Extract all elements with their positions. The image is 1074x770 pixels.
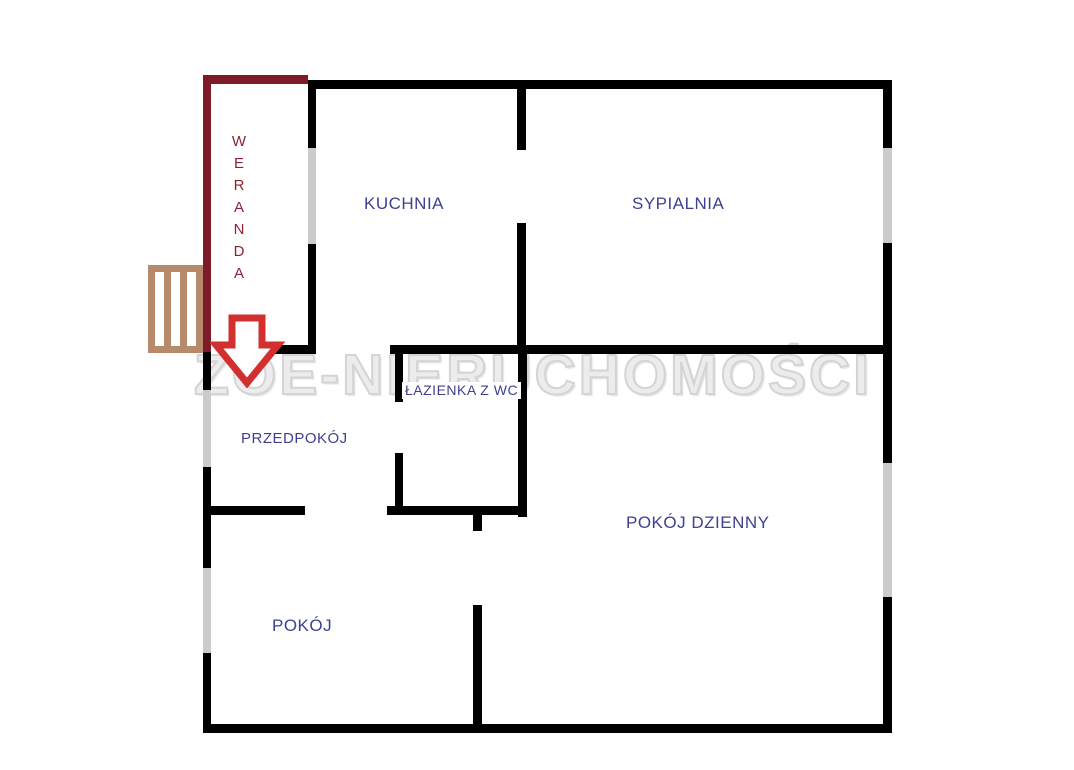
room-label-lazienka: ŁAZIENKA Z WC: [402, 382, 521, 399]
window-segment: [883, 463, 892, 597]
stairs-step: [180, 272, 187, 346]
wall-segment: [518, 345, 527, 517]
wall-segment: [308, 244, 316, 352]
room-label-pokoj-dzienny: POKÓJ DZIENNY: [626, 514, 769, 533]
veranda-wall-segment: [203, 75, 211, 352]
room-label-przedpokoj: PRZEDPOKÓJ: [241, 431, 348, 448]
wall-segment: [308, 80, 316, 148]
room-label-weranda: WERANDA: [230, 133, 247, 287]
veranda-wall-segment: [203, 75, 308, 84]
wall-segment: [395, 453, 403, 513]
stairs-step: [164, 272, 171, 346]
wall-segment: [473, 514, 482, 531]
watermark-text: ZOE-NIERUCHOMOŚCI: [194, 347, 872, 404]
window-segment: [203, 390, 211, 467]
wall-segment: [517, 80, 526, 150]
arrow-shape: [216, 318, 278, 383]
entrance-arrow-icon: [210, 312, 286, 388]
wall-segment: [203, 467, 211, 568]
wall-segment: [473, 605, 482, 733]
room-label-kuchnia: KUCHNIA: [364, 195, 444, 214]
wall-segment: [308, 80, 892, 89]
wall-segment: [387, 506, 527, 515]
wall-segment: [203, 724, 892, 733]
window-segment: [308, 148, 316, 244]
stairs-icon: [148, 265, 203, 353]
wall-segment: [517, 223, 526, 354]
wall-segment: [883, 597, 892, 733]
wall-segment: [883, 80, 892, 148]
room-label-sypialnia: SYPIALNIA: [632, 195, 724, 214]
wall-segment: [203, 653, 211, 733]
floorplan: ZOE-NIERUCHOMOŚCI WERANDA KUCHNIA SYPIAL…: [0, 0, 1074, 770]
wall-segment: [390, 345, 892, 354]
window-segment: [203, 568, 211, 653]
window-segment: [883, 148, 892, 243]
wall-segment: [203, 506, 305, 515]
room-label-pokoj: POKÓJ: [272, 617, 332, 636]
